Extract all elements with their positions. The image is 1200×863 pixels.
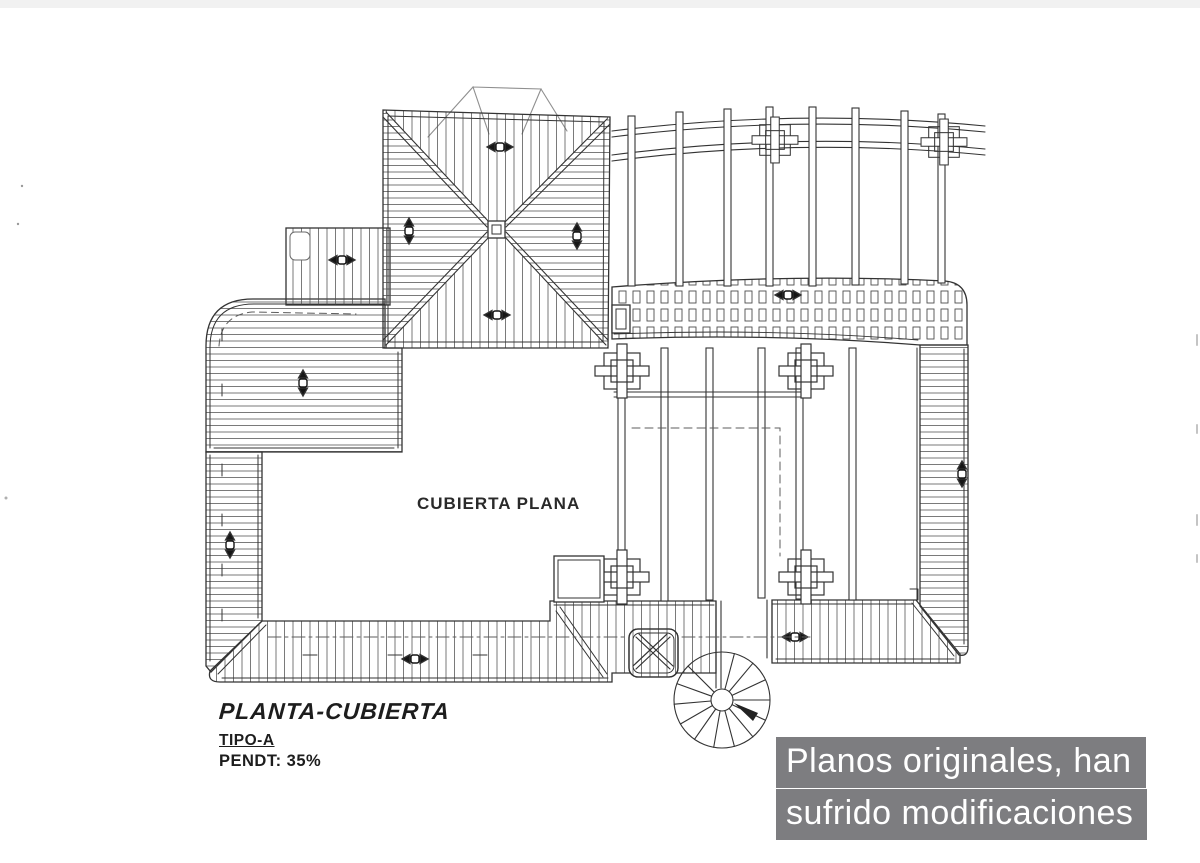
plan-slope-label: PENDT: 35% xyxy=(219,752,450,771)
spiral-staircase xyxy=(674,652,770,748)
roof-plane-right-band xyxy=(917,345,968,655)
stair-corridor-walls xyxy=(716,600,772,688)
column-marker xyxy=(779,550,833,604)
small-roof-left xyxy=(286,228,390,305)
pergola-beams-upper xyxy=(628,107,945,286)
column-marker xyxy=(595,344,649,398)
plan-title: PLANTA-CUBIERTA xyxy=(218,698,451,725)
caption-line-2: sufrido modificaciones xyxy=(776,789,1147,840)
plan-linework xyxy=(5,87,1198,748)
roof-plan-sheet: CUBIERTA PLANA PLANTA-CUBIERTA TIPO-A PE… xyxy=(0,0,1200,863)
chimney xyxy=(629,629,678,677)
column-marker xyxy=(921,119,967,165)
roof-plan-drawing xyxy=(0,0,1200,863)
title-block: PLANTA-CUBIERTA TIPO-A PENDT: 35% xyxy=(219,698,450,771)
plan-type-label: TIPO-A xyxy=(219,732,450,750)
column-marker xyxy=(779,344,833,398)
wall-protrusion xyxy=(554,556,604,602)
flat-roof-label: CUBIERTA PLANA xyxy=(417,494,580,514)
caption-line-1: Planos originales, han xyxy=(776,737,1146,788)
pergola-beams-lower xyxy=(618,348,856,601)
caption-overlay: Planos originales, han sufrido modificac… xyxy=(776,737,1147,840)
tiled-ridge-band xyxy=(612,278,967,345)
